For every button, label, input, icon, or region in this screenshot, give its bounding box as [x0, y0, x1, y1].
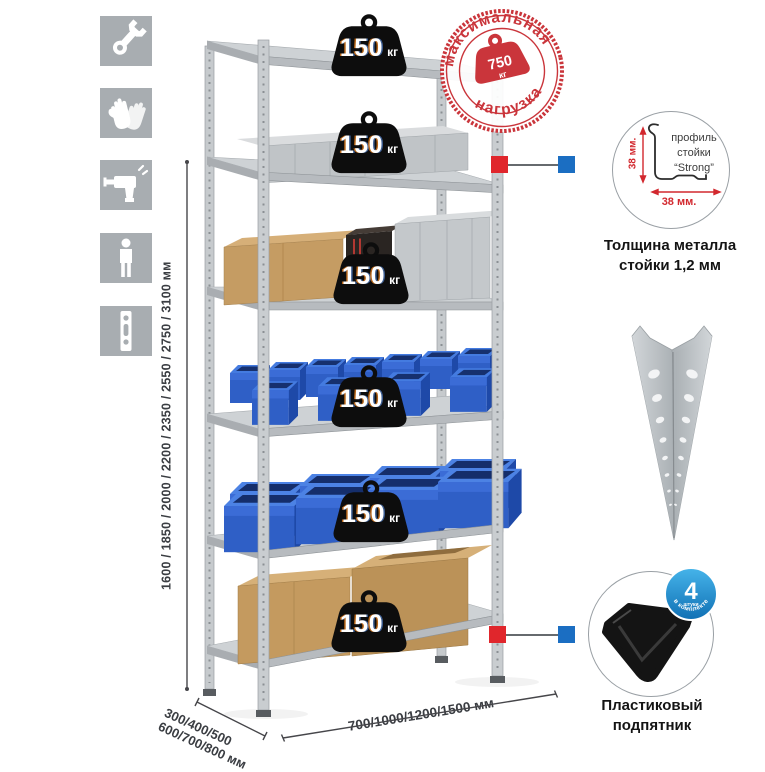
load-unit: кг: [389, 273, 400, 287]
load-unit: кг: [387, 142, 398, 156]
profile-callout-red-marker: [491, 156, 508, 173]
load-unit: кг: [387, 45, 398, 59]
weight-label: 150кг: [324, 500, 418, 529]
load-value: 150: [342, 500, 385, 528]
weight-label: 150кг: [322, 385, 416, 414]
profile-callout-line: [508, 164, 558, 166]
included-count-value: 4: [684, 578, 698, 605]
load-value: 150: [340, 131, 383, 159]
shelf-load-badge-4: 150кг: [322, 364, 416, 430]
stamp-graphic: максимальная нагрузка 750 кг: [437, 6, 567, 136]
load-value: 150: [340, 34, 383, 62]
included-count-badge: 4 штуки в комплекте: [663, 566, 719, 622]
shelf-load-badge-3: 150кг: [324, 241, 418, 307]
shelf-load-badge-2: 150кг: [322, 110, 416, 176]
shelf-load-badge-6: 150кг: [322, 589, 416, 655]
included-count-graphic: 4 штуки в комплекте: [663, 566, 719, 622]
load-value: 150: [340, 385, 383, 413]
product-infographic-page: { "stamp": { "arc_top": "максимальная", …: [0, 0, 765, 765]
load-value: 150: [342, 262, 385, 290]
shelf-load-badge-5: 150кг: [324, 479, 418, 545]
foot-callout-red-marker: [489, 626, 506, 643]
load-unit: кг: [387, 396, 398, 410]
profile-callout-blue-marker: [558, 156, 575, 173]
load-unit: кг: [389, 511, 400, 525]
weight-label: 150кг: [322, 34, 416, 63]
weight-label: 150кг: [324, 262, 418, 291]
foot-callout-line: [506, 634, 558, 636]
weight-label: 150кг: [322, 610, 416, 639]
shelf-load-badge-1: 150кг: [322, 13, 416, 79]
load-unit: кг: [387, 621, 398, 635]
load-value: 150: [340, 610, 383, 638]
weight-label: 150кг: [322, 131, 416, 160]
max-load-stamp: максимальная нагрузка 750 кг: [437, 6, 567, 136]
foot-callout-blue-marker: [558, 626, 575, 643]
